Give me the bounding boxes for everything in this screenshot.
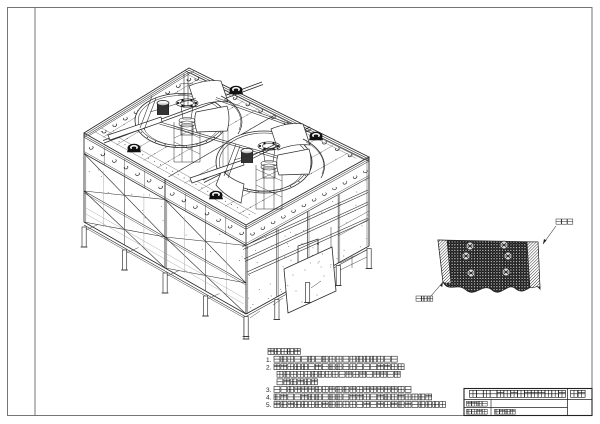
svg-text:2.: 2.	[266, 364, 272, 371]
svg-text:1.: 1.	[266, 357, 272, 364]
svg-text:3.: 3.	[266, 387, 272, 394]
svg-text:4.: 4.	[266, 395, 272, 402]
svg-text:5.: 5.	[266, 402, 272, 409]
